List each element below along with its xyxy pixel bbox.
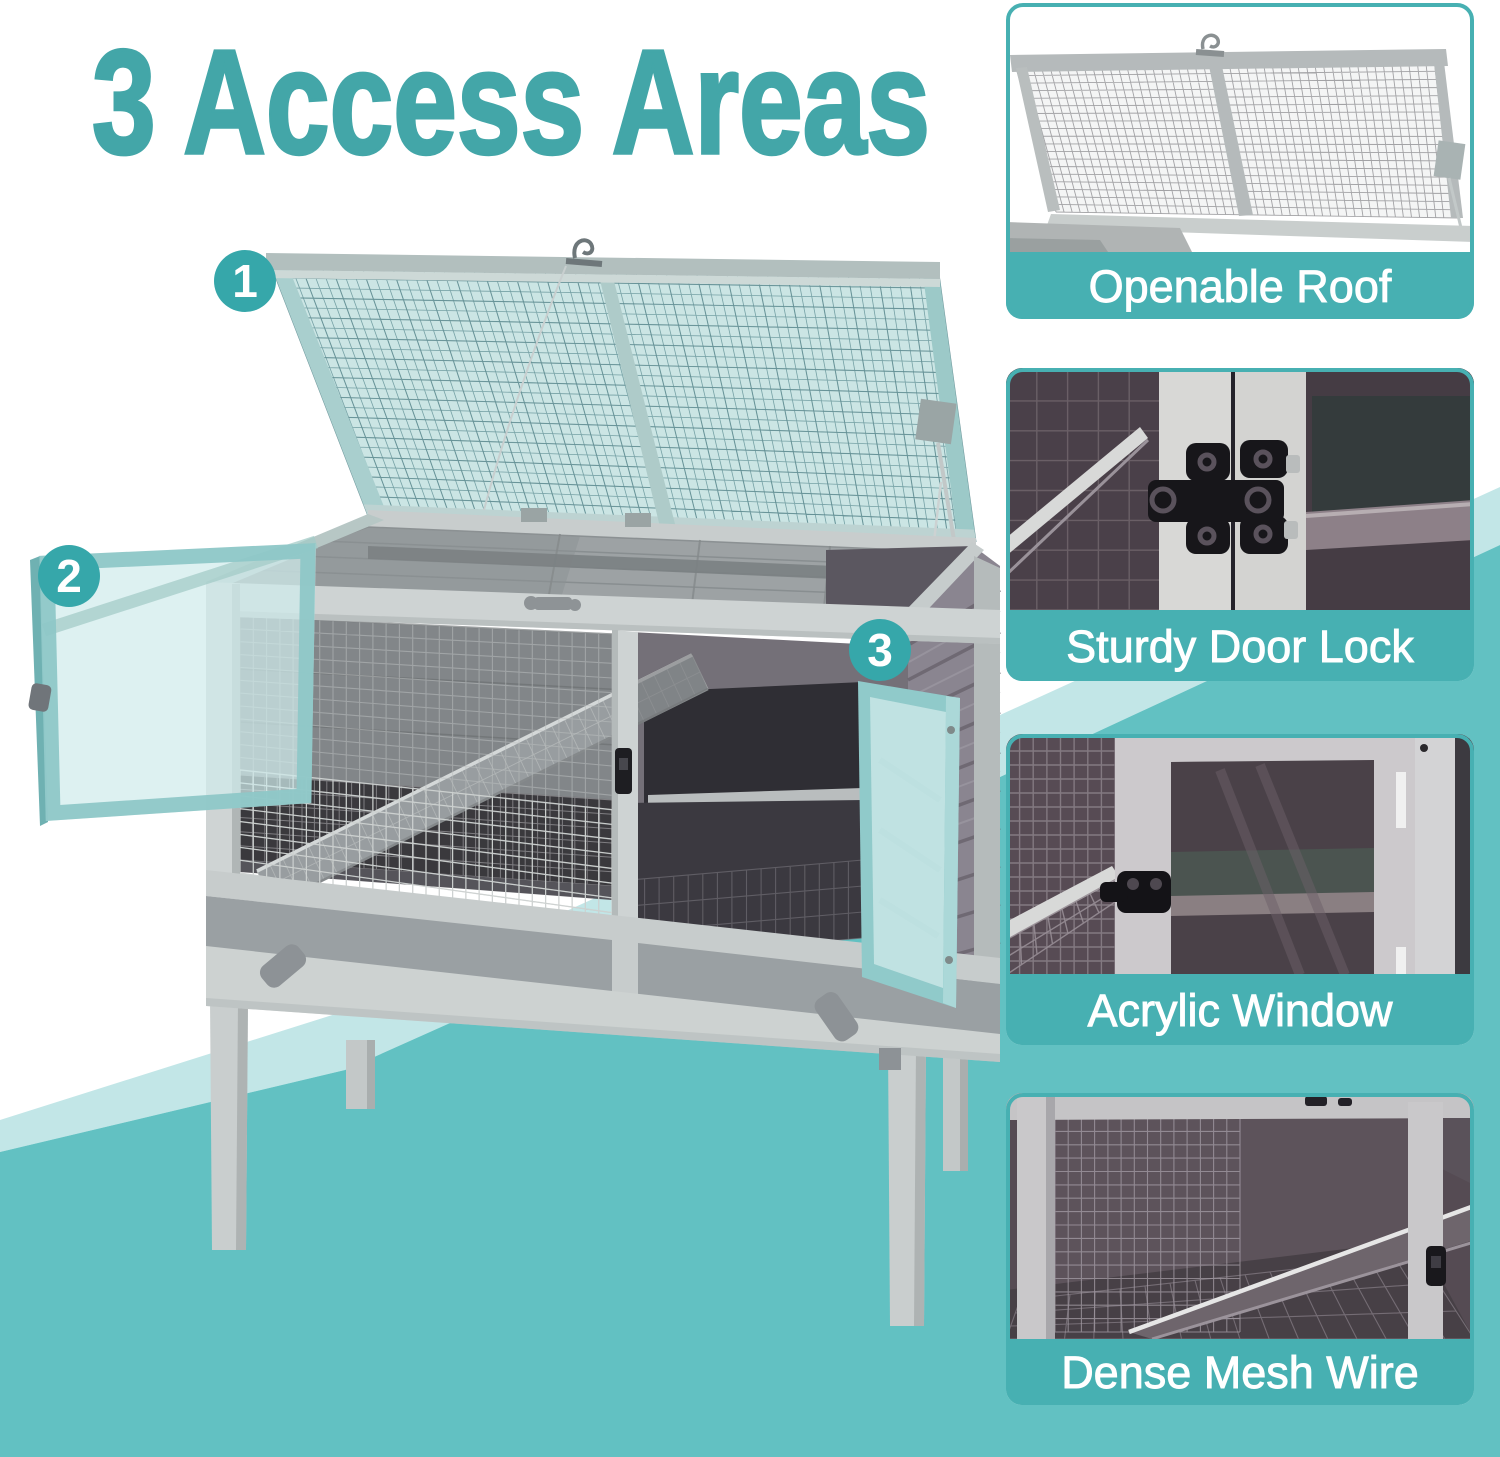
- svg-text:3 Access Areas: 3 Access Areas: [92, 20, 930, 185]
- svg-text:Dense Mesh Wire: Dense Mesh Wire: [1061, 1347, 1419, 1398]
- svg-text:Sturdy Door Lock: Sturdy Door Lock: [1066, 621, 1414, 672]
- svg-text:2: 2: [56, 550, 82, 602]
- svg-text:1: 1: [232, 255, 258, 307]
- svg-text:3: 3: [867, 624, 893, 676]
- svg-text:Acrylic Window: Acrylic Window: [1087, 985, 1393, 1036]
- svg-text:Openable Roof: Openable Roof: [1089, 261, 1392, 312]
